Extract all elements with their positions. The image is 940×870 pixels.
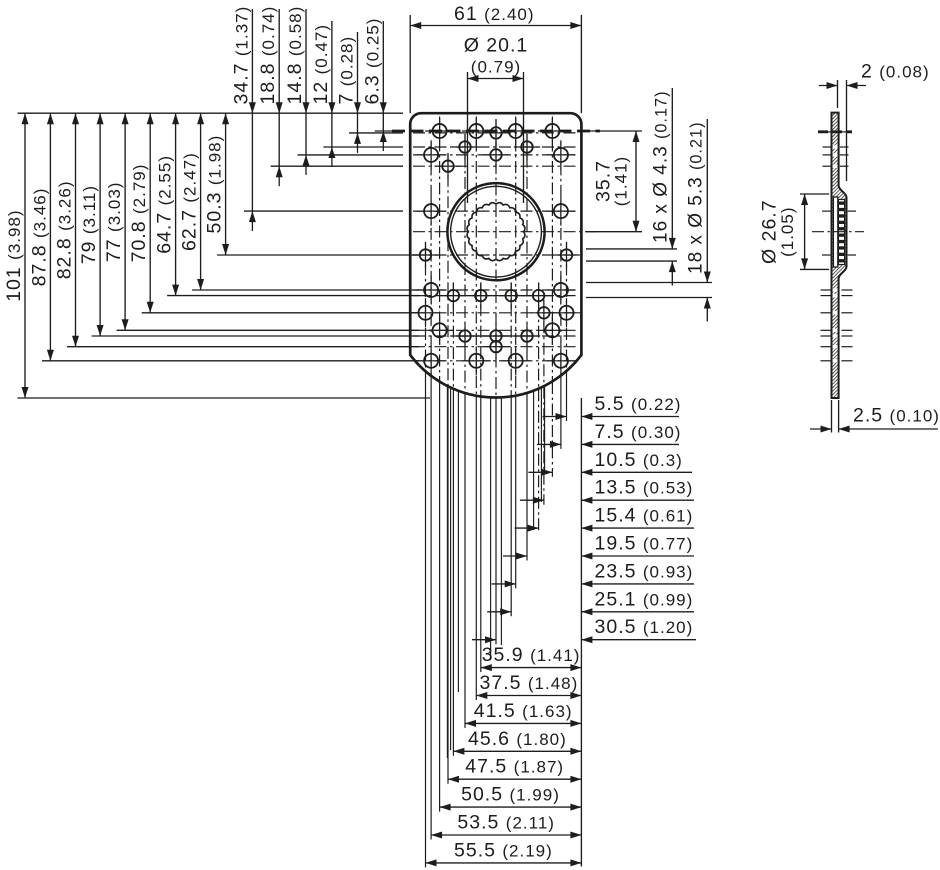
svg-text:47.5 (1.87): 47.5 (1.87) [465,756,564,778]
svg-text:23.5 (0.93): 23.5 (0.93) [595,560,694,582]
svg-text:55.5 (2.19): 55.5 (2.19) [454,839,553,861]
svg-text:87.8 (3.46): 87.8 (3.46) [28,188,50,287]
svg-text:41.5 (1.63): 41.5 (1.63) [474,700,573,722]
svg-text:14.8 (0.58): 14.8 (0.58) [284,6,306,105]
svg-text:53.5 (2.11): 53.5 (2.11) [457,812,555,834]
svg-text:35.9 (1.41): 35.9 (1.41) [482,644,581,666]
svg-text:79 (3.11): 79 (3.11) [78,185,100,264]
svg-text:18 x Ø 5.3 (0.21): 18 x Ø 5.3 (0.21) [686,122,707,275]
svg-text:16 x Ø 4.3 (0.17): 16 x Ø 4.3 (0.17) [651,91,672,244]
svg-text:19.5 (0.77): 19.5 (0.77) [595,533,694,555]
svg-text:Ø 20.1: Ø 20.1 [464,35,529,57]
svg-text:2.5 (0.10): 2.5 (0.10) [853,405,940,427]
svg-text:30.5 (1.20): 30.5 (1.20) [595,616,694,638]
svg-text:7 (0.28): 7 (0.28) [336,36,358,105]
svg-text:61 (2.40): 61 (2.40) [454,3,535,25]
svg-text:13.5 (0.53): 13.5 (0.53) [595,477,694,499]
svg-text:6.3 (0.25): 6.3 (0.25) [361,18,383,105]
svg-text:(0.79): (0.79) [471,58,521,77]
svg-text:25.1 (0.99): 25.1 (0.99) [595,588,694,610]
svg-text:(1.05): (1.05) [778,206,797,256]
svg-text:2 (0.08): 2 (0.08) [861,61,930,83]
svg-text:50.3 (1.98): 50.3 (1.98) [204,135,226,234]
svg-text:45.6 (1.80): 45.6 (1.80) [468,728,567,750]
svg-text:37.5 (1.48): 37.5 (1.48) [480,672,579,694]
svg-text:7.5 (0.30): 7.5 (0.30) [595,421,682,443]
svg-text:82.8 (3.26): 82.8 (3.26) [54,181,76,280]
svg-text:50.5 (1.99): 50.5 (1.99) [461,784,560,806]
svg-text:12 (0.47): 12 (0.47) [310,24,332,105]
svg-text:18.8 (0.74): 18.8 (0.74) [257,6,279,105]
svg-text:10.5 (0.3): 10.5 (0.3) [595,449,683,471]
svg-text:77 (3.03): 77 (3.03) [103,182,125,263]
svg-text:64.7 (2.55): 64.7 (2.55) [154,155,176,254]
svg-text:15.4 (0.61): 15.4 (0.61) [595,505,694,527]
svg-text:62.7 (2.47): 62.7 (2.47) [179,152,201,251]
svg-text:5.5 (0.22): 5.5 (0.22) [595,393,682,415]
svg-text:34.7 (1.37): 34.7 (1.37) [230,6,252,105]
svg-text:(1.41): (1.41) [612,156,631,206]
svg-text:70.8 (2.79): 70.8 (2.79) [128,164,150,263]
svg-text:101 (3.98): 101 (3.98) [3,209,25,301]
